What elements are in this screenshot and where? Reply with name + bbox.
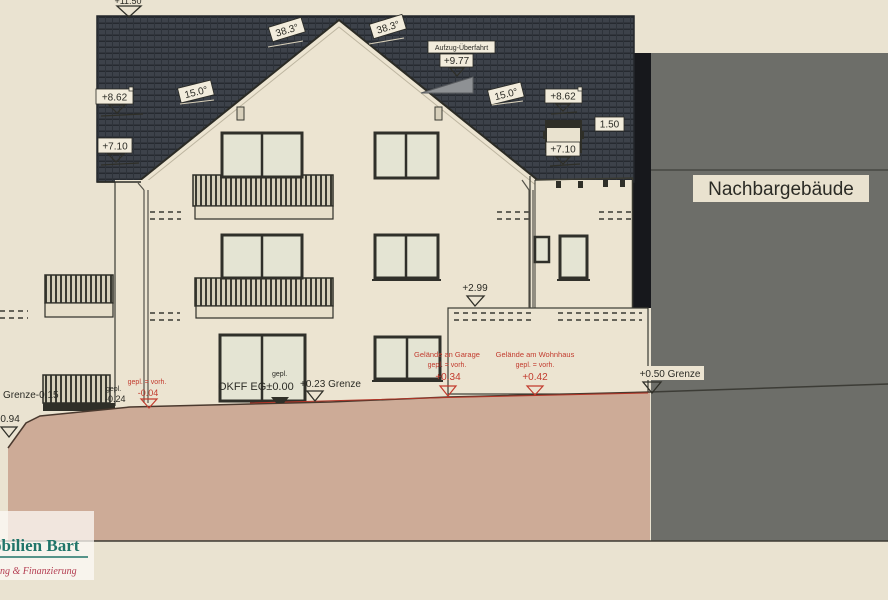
neighbor-building	[651, 53, 888, 541]
level-symbol	[129, 87, 133, 91]
window-dg-left	[222, 133, 302, 177]
logo-name: obilien Bart	[0, 536, 80, 555]
house-gepl-vorh-label: gepl. = vorh.	[516, 362, 555, 369]
level-left-red-label: -0.04	[138, 388, 159, 398]
rafter-tab	[578, 181, 583, 188]
window-eg-right	[372, 337, 443, 381]
purlin-end	[237, 107, 244, 120]
house-caption-label: Gelände am Wohnhaus	[496, 350, 575, 359]
garage-gepl-vorh-label: gepl. = vorh.	[428, 362, 467, 369]
boundary-mid-label: +0.23 Grenze	[300, 379, 361, 390]
window-og-right	[372, 235, 441, 280]
garage-level-label: +0.34	[435, 372, 461, 383]
window-wing-small	[535, 237, 549, 262]
level-symbol	[578, 87, 582, 91]
rafter-tab	[620, 180, 625, 187]
balcony-dg	[193, 175, 333, 219]
terrain	[8, 392, 650, 541]
right-level-upper-label: +8.62	[550, 92, 576, 103]
okff-label: OKFF EG±0.00	[218, 381, 294, 393]
gepl-small-label: gepl.	[106, 386, 121, 393]
level-terrace-label: -0.24	[105, 394, 126, 404]
right-level-lower-label: +7.10	[550, 145, 576, 156]
ridge-level-label: +11.50	[114, 0, 141, 6]
purlin-end	[435, 107, 442, 120]
logo: obilien Bart ung & Finanzierung	[0, 511, 94, 580]
left-level-lower-label: +7.10	[102, 142, 128, 153]
window-og-left	[222, 235, 302, 278]
boundary-right-label: +0.50 Grenze	[640, 369, 701, 380]
level-left-lower-label: -0.94	[0, 414, 20, 425]
house-level-label: +0.42	[522, 372, 548, 383]
balcony-og-left	[45, 275, 113, 317]
rafter-tab	[556, 181, 561, 188]
elevator-name-label: Aufzug-Überfahrt	[435, 44, 488, 52]
neighbor-building-label: Nachbargebäude	[708, 179, 854, 200]
rafter-tab	[603, 180, 608, 187]
left-level-upper-label: +8.62	[102, 93, 128, 104]
elevator-level-label: +9.77	[444, 56, 470, 67]
gap-shadow	[633, 53, 651, 308]
garage-caption-label: Gelände an Garage	[414, 350, 480, 359]
balcony-og	[195, 278, 333, 318]
drawing-canvas: +11.50 +8.62 15.0° +7.10 38.3° 38.3° Auf…	[0, 0, 888, 600]
okff-gepl-label: gepl.	[272, 371, 287, 378]
garage-roof-level-label: +2.99	[462, 283, 488, 294]
elevation-drawing: +11.50 +8.62 15.0° +7.10 38.3° 38.3° Auf…	[0, 0, 888, 600]
window-wing-large	[557, 236, 590, 280]
window-dg-right	[375, 133, 438, 178]
boundary-left-label: Grenze-0.15	[3, 390, 59, 401]
right-width-label: 1.50	[600, 120, 620, 131]
logo-tagline: ung & Finanzierung	[0, 566, 77, 577]
gepl-vorh-left-label: gepl. = vorh.	[128, 379, 167, 386]
